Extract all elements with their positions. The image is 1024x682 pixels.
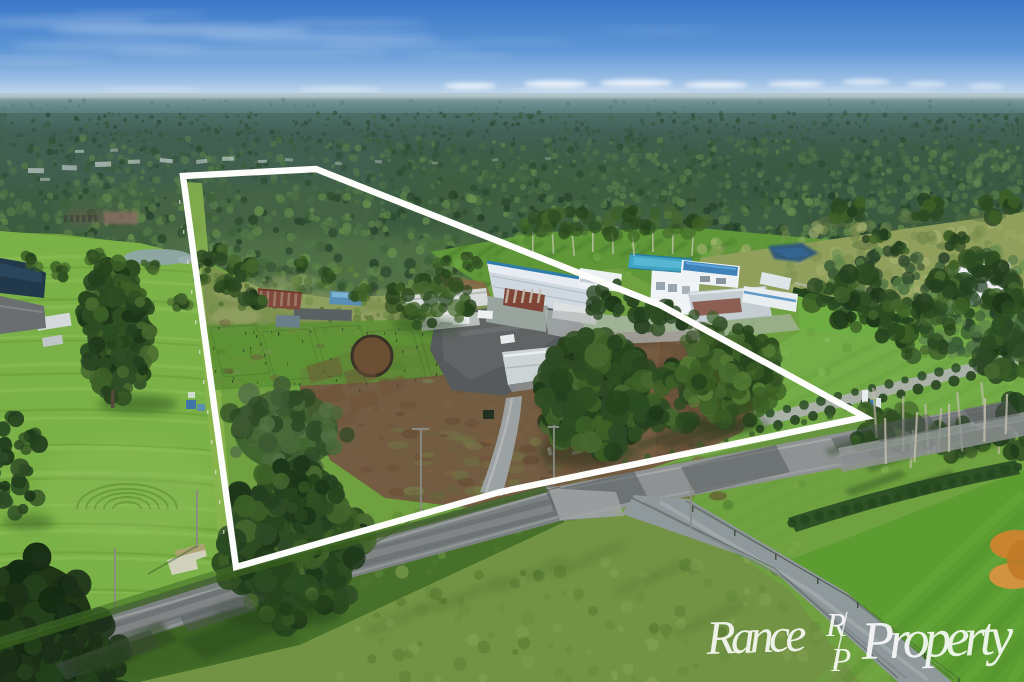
svg-text:Rance: Rance [704,608,807,664]
svg-text:P: P [830,642,851,678]
svg-text:Property: Property [859,606,1014,671]
svg-text:R: R [825,607,846,643]
